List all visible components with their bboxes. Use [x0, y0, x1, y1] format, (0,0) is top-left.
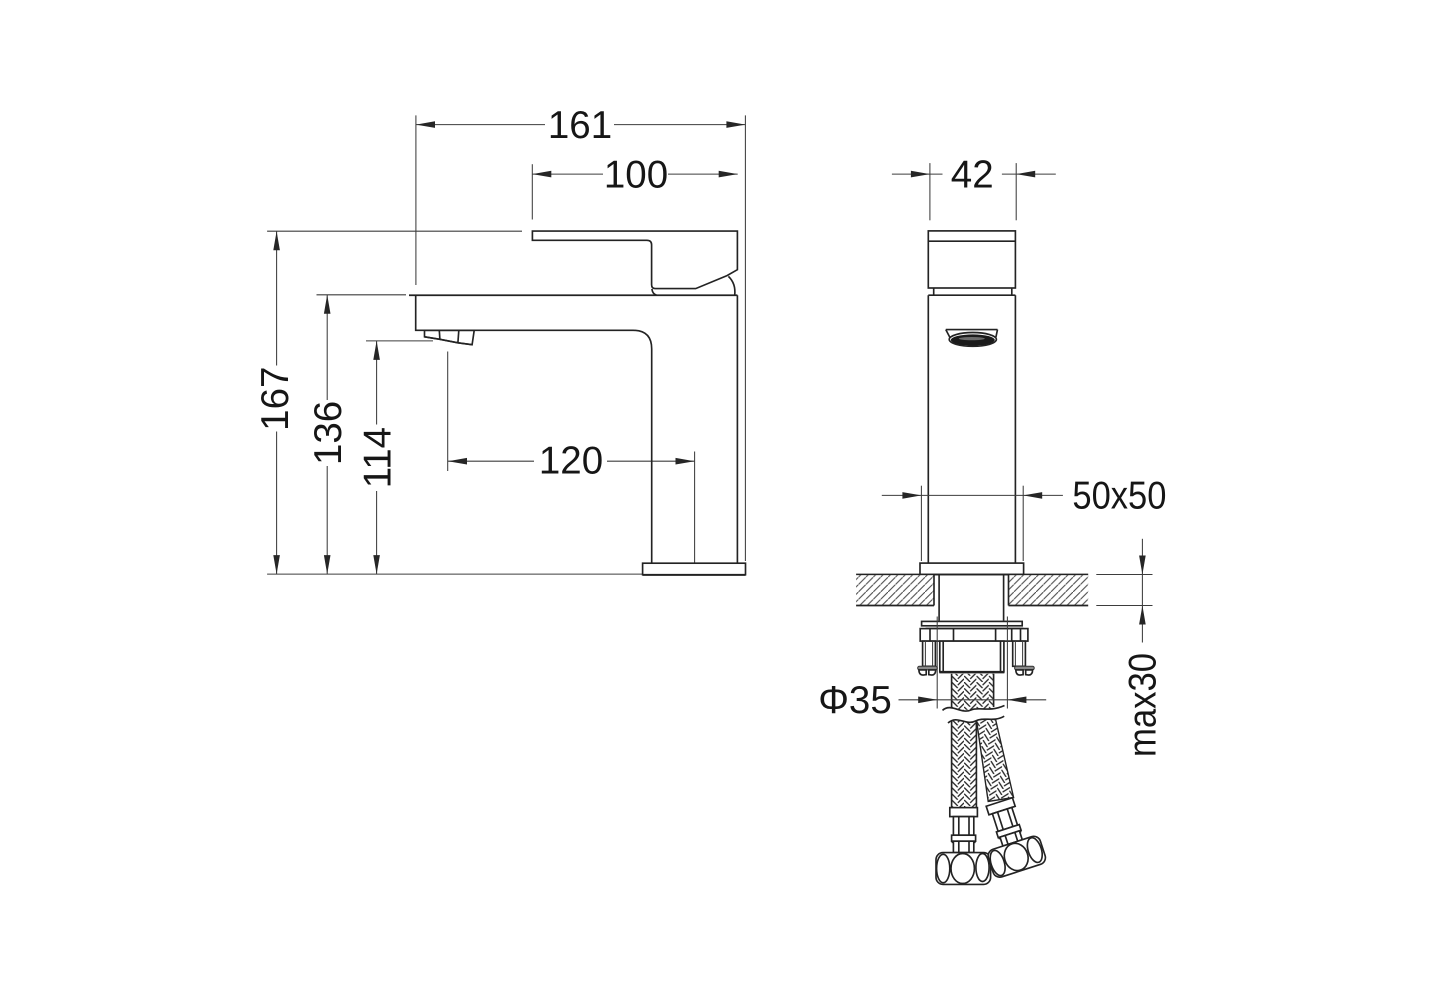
- svg-text:100: 100: [604, 153, 668, 196]
- svg-text:max30: max30: [1122, 653, 1165, 757]
- svg-text:50x50: 50x50: [1072, 475, 1166, 518]
- svg-text:42: 42: [951, 153, 994, 196]
- svg-text:120: 120: [539, 440, 603, 483]
- svg-text:114: 114: [357, 427, 400, 488]
- svg-text:161: 161: [548, 104, 612, 147]
- svg-text:167: 167: [254, 367, 297, 431]
- svg-text:Φ35: Φ35: [818, 679, 892, 722]
- svg-text:136: 136: [307, 401, 350, 465]
